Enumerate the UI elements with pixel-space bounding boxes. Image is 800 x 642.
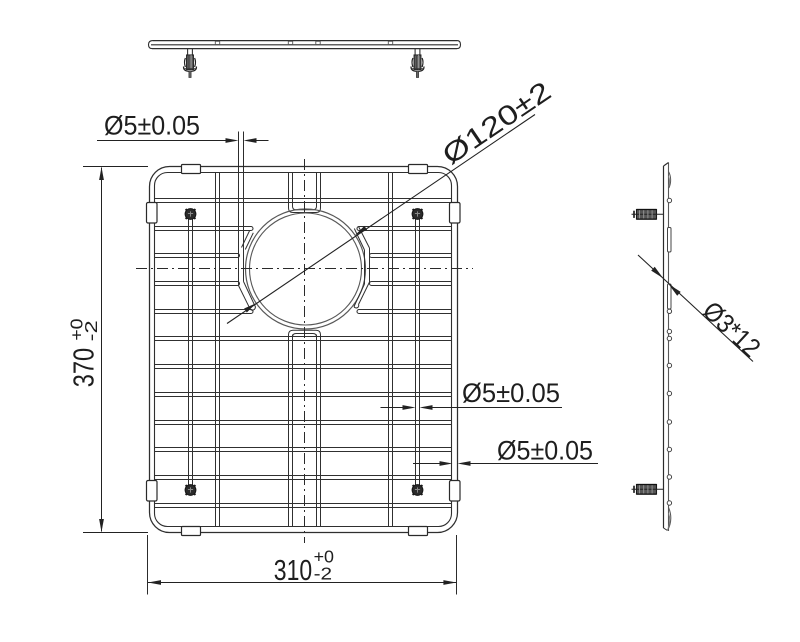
- svg-text:-2: -2: [314, 564, 333, 584]
- svg-text:Ø5±0.05: Ø5±0.05: [497, 436, 593, 466]
- svg-text:Ø5±0.05: Ø5±0.05: [462, 378, 560, 408]
- svg-text:310: 310: [274, 555, 312, 587]
- svg-text:-2: -2: [81, 320, 101, 341]
- svg-text:Ø5±0.05: Ø5±0.05: [104, 111, 200, 141]
- svg-text:370: 370: [68, 348, 100, 388]
